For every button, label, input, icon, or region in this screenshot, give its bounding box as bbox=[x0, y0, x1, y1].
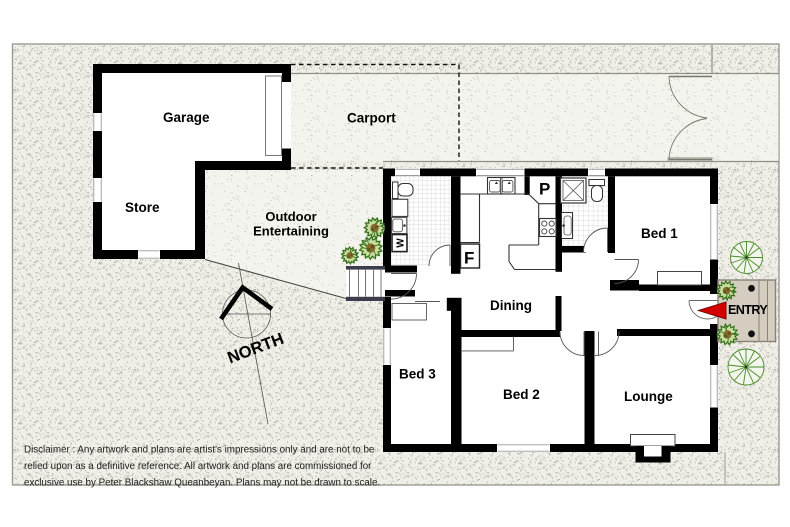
svg-text:Garage: Garage bbox=[163, 110, 210, 125]
svg-text:Entertaining: Entertaining bbox=[253, 224, 329, 239]
svg-text:Outdoor: Outdoor bbox=[265, 209, 316, 224]
svg-text:relied upon as a definitive re: relied upon as a definitive reference. A… bbox=[24, 461, 372, 472]
svg-text:Dining: Dining bbox=[490, 298, 532, 313]
svg-text:P: P bbox=[539, 180, 550, 199]
svg-text:Bed 1: Bed 1 bbox=[641, 226, 678, 241]
svg-text:W: W bbox=[395, 238, 406, 248]
svg-text:Bed 3: Bed 3 bbox=[399, 367, 436, 382]
svg-text:Disclaimer : Any artwork and p: Disclaimer : Any artwork and plans are a… bbox=[24, 445, 375, 456]
svg-text:exclusive use by Peter Blacksh: exclusive use by Peter Blackshaw Queanbe… bbox=[24, 478, 380, 489]
svg-text:Store: Store bbox=[125, 200, 160, 215]
svg-text:Carport: Carport bbox=[347, 111, 396, 126]
svg-text:Bed 2: Bed 2 bbox=[503, 387, 540, 402]
svg-text:ENTRY: ENTRY bbox=[728, 303, 768, 317]
svg-text:Lounge: Lounge bbox=[624, 389, 673, 404]
svg-text:F: F bbox=[464, 249, 474, 268]
